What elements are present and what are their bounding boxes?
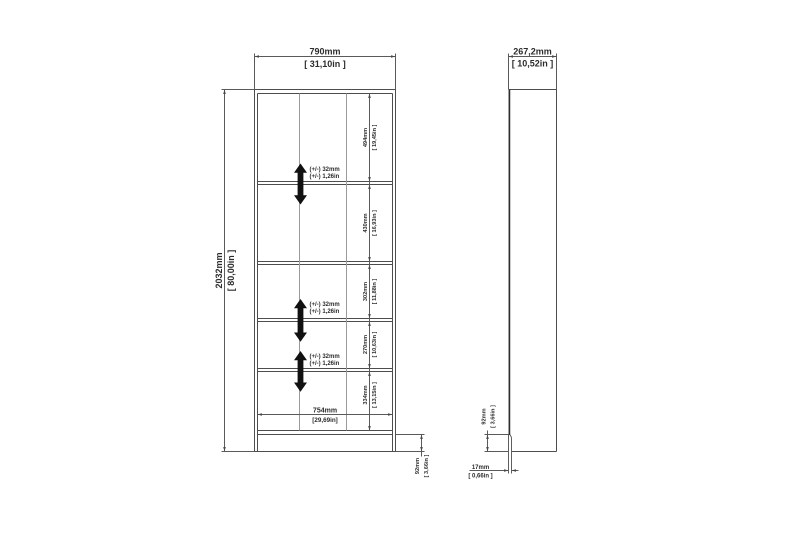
svg-text:267,2mm: 267,2mm xyxy=(513,46,552,56)
svg-text:270mm: 270mm xyxy=(363,335,369,354)
svg-text:430mm: 430mm xyxy=(363,213,369,232)
svg-text:302mm: 302mm xyxy=(363,282,369,301)
svg-text:(+/-) 1,26in: (+/-) 1,26in xyxy=(310,174,340,180)
svg-text:2032mm: 2032mm xyxy=(214,252,224,288)
svg-text:790mm: 790mm xyxy=(309,47,340,57)
svg-text:92mm: 92mm xyxy=(415,458,421,474)
svg-text:[ 31,10in ]: [ 31,10in ] xyxy=(304,59,346,69)
svg-text:(+/-) 32mm: (+/-) 32mm xyxy=(310,302,340,308)
svg-text:[ 3,66in ]: [ 3,66in ] xyxy=(424,455,430,478)
svg-text:[29,69in]: [29,69in] xyxy=(312,417,338,424)
svg-text:[ 0,66in ]: [ 0,66in ] xyxy=(468,474,492,480)
svg-text:[ 3,66in ]: [ 3,66in ] xyxy=(490,405,496,428)
svg-text:334mm: 334mm xyxy=(363,385,369,404)
svg-text:[ 13,15in ]: [ 13,15in ] xyxy=(372,382,378,408)
svg-text:[ 11,88in ]: [ 11,88in ] xyxy=(372,279,378,305)
svg-text:[ 10,52in ]: [ 10,52in ] xyxy=(512,59,554,69)
svg-text:(+/-) 32mm: (+/-) 32mm xyxy=(310,354,340,360)
svg-text:(+/-) 1,26in: (+/-) 1,26in xyxy=(310,309,340,315)
svg-text:[ 16,93in ]: [ 16,93in ] xyxy=(372,210,378,236)
svg-text:(+/-) 1,26in: (+/-) 1,26in xyxy=(310,361,340,367)
svg-text:(+/-) 32mm: (+/-) 32mm xyxy=(310,167,340,173)
svg-text:17mm: 17mm xyxy=(472,465,489,471)
svg-text:[ 19,45in ]: [ 19,45in ] xyxy=(372,124,378,150)
svg-text:754mm: 754mm xyxy=(313,408,337,415)
svg-text:[ 80,00in ]: [ 80,00in ] xyxy=(226,250,236,292)
svg-text:92mm: 92mm xyxy=(481,408,487,424)
svg-text:494mm: 494mm xyxy=(363,128,369,147)
svg-text:[ 10,63in ]: [ 10,63in ] xyxy=(372,331,378,357)
